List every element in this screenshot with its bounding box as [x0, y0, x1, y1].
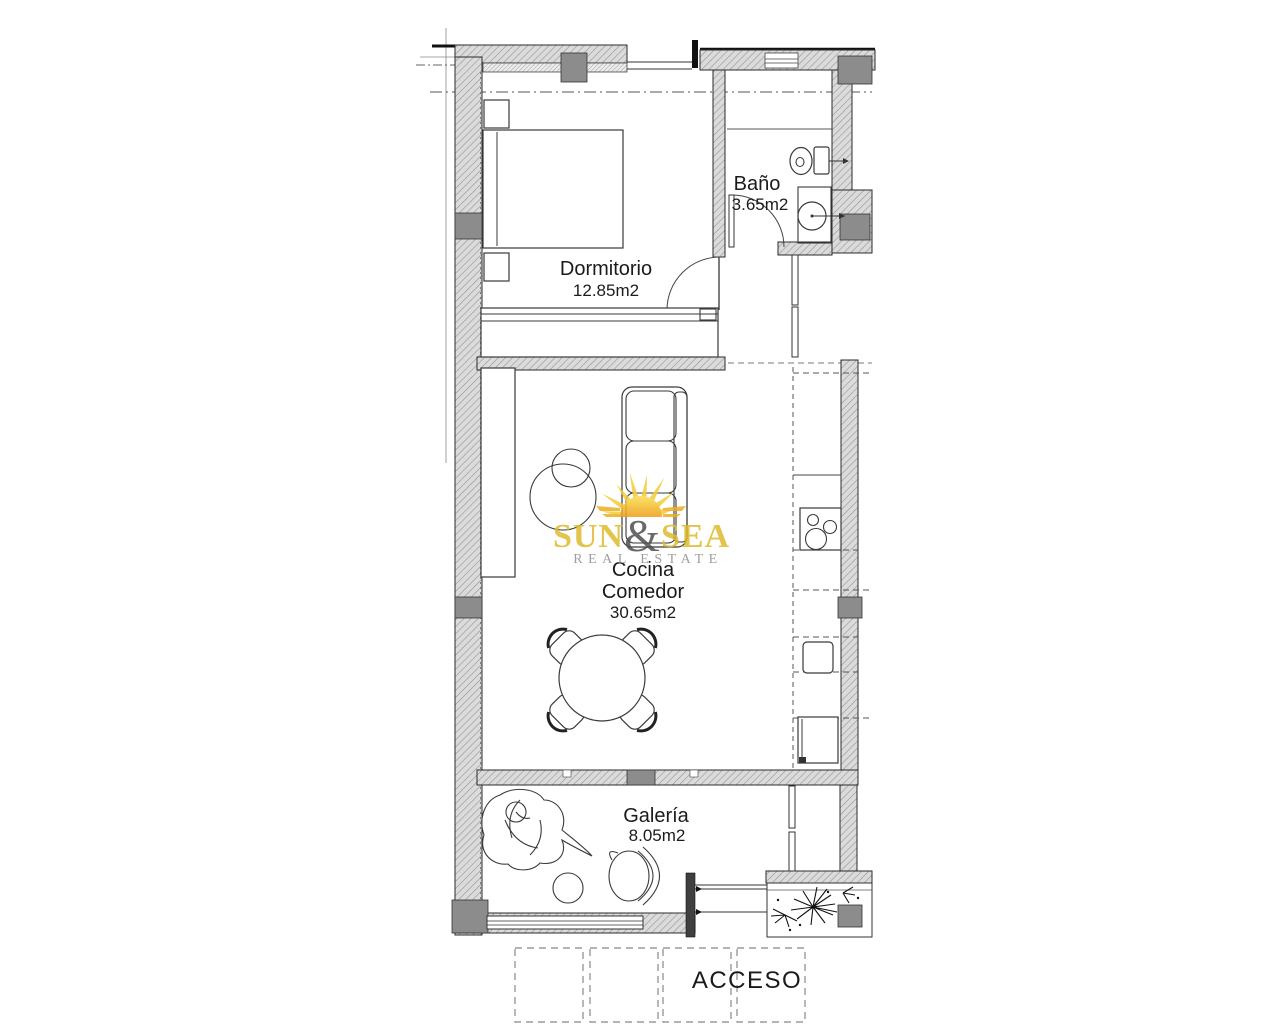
room-label-galeria: Galería [623, 805, 689, 827]
room-area-cocina-comedor: 30.65m2 [610, 603, 676, 622]
porch-door [789, 786, 795, 828]
room-area-bano: 3.65m2 [732, 195, 789, 214]
hall-cabinet [792, 307, 798, 357]
pillar-block [452, 900, 488, 933]
nightstand [484, 253, 509, 281]
plant [482, 789, 592, 869]
logo-subtitle: REAL ESTATE [573, 552, 722, 567]
galeria-window [487, 916, 643, 929]
galeria-chair [609, 847, 660, 905]
wardrobe [481, 308, 718, 357]
stool [553, 873, 583, 903]
porch-door [789, 832, 795, 871]
entry-jamb [686, 873, 695, 937]
wall-porch-right [840, 785, 857, 873]
room-label-bano: Baño [734, 173, 781, 195]
logo-word-sea: SEA [661, 518, 730, 555]
pillar-block [561, 53, 587, 82]
wall-galeria-separator [477, 770, 858, 785]
window-bano [765, 53, 798, 68]
pillar-block [455, 597, 482, 618]
pavement-tile [515, 948, 583, 1022]
wall-porch-bottom [766, 871, 872, 883]
wall-tick [692, 40, 698, 68]
footstool [552, 449, 590, 487]
bedroom-furniture [481, 100, 718, 357]
bed [483, 130, 623, 248]
floorplan-page: Dormitorio 12.85m2 Baño 3.65m2 Cocina Co… [0, 0, 1280, 1024]
access-label: ACCESO [692, 967, 802, 994]
kitchen-sink [803, 642, 833, 673]
room-area-dormitorio: 12.85m2 [573, 281, 639, 300]
pillar-block [627, 770, 655, 785]
nightstand [484, 100, 509, 128]
kitchen-counter [793, 367, 872, 770]
wall-right-kitchen [841, 360, 858, 785]
dining-table [541, 622, 663, 738]
sideboard [481, 368, 515, 577]
logo-word-sun: SUN [553, 518, 624, 555]
pillar-block [455, 213, 482, 239]
room-area-galeria: 8.05m2 [629, 826, 686, 845]
room-label-dormitorio: Dormitorio [560, 258, 652, 280]
table-top [559, 635, 645, 721]
kitchen-hob [800, 508, 841, 550]
pavement-tile [590, 948, 658, 1022]
wall-bano-bottom [778, 242, 832, 255]
pillar-block [838, 597, 862, 618]
room-label-comedor: Comedor [602, 581, 685, 603]
window-dormitorio [483, 63, 627, 72]
planter [767, 883, 872, 937]
planter-pot [838, 905, 862, 927]
entry-area [695, 883, 872, 937]
door-arc-dormitorio [667, 257, 720, 310]
appliance [798, 717, 838, 763]
pillar-block [840, 214, 870, 240]
floor-plan-svg: Dormitorio 12.85m2 Baño 3.65m2 Cocina Co… [0, 0, 1280, 1024]
wall-left [455, 57, 482, 935]
pillar-block [838, 56, 872, 84]
hall-cabinet [792, 255, 798, 305]
wall-dorm-bano-divider [713, 70, 725, 257]
